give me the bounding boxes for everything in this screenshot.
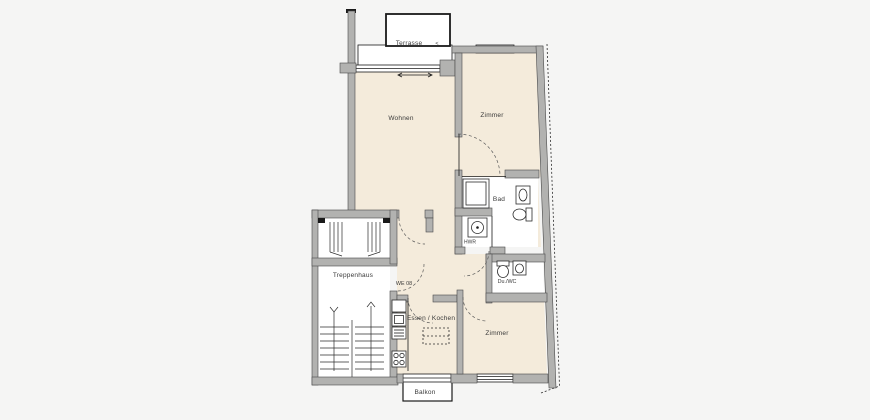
window-zimmer-bottom (477, 374, 513, 382)
label-essen-kochen: Essen / Kochen (407, 315, 456, 322)
kitchen-counter (392, 298, 408, 371)
wall-top-exterior (452, 46, 543, 53)
room-wohnen-floor (354, 71, 455, 212)
label-terrasse-mark: < (435, 41, 438, 47)
wall-left-exterior (348, 11, 355, 212)
wall-zimmer-top-bottom (505, 170, 539, 178)
label-zimmer-top: Zimmer (480, 112, 504, 119)
shower-tray (463, 179, 489, 208)
wall-bad-bottom-2 (490, 247, 505, 254)
wall-stairwell-bottom (312, 377, 398, 385)
label-we-number: WE 08 (396, 281, 412, 287)
label-zimmer-bottom: Zimmer (485, 330, 509, 337)
stove-icon (392, 351, 406, 367)
label-wohnen: Wohnen (388, 115, 413, 122)
wall-bottom-1 (397, 374, 403, 383)
label-bad: Bad (493, 196, 505, 203)
wall-stairwell-left (312, 210, 318, 385)
wall-window-block-left (340, 63, 356, 73)
wall-bad-bottom-1 (455, 247, 465, 254)
label-treppenhaus: Treppenhaus (333, 272, 374, 279)
label-hwr: HWR (464, 240, 476, 246)
washbasin-duwc (513, 261, 526, 275)
wall-zimmer-bottom-left (457, 290, 463, 374)
terrace-slab (358, 45, 452, 66)
label-terrasse: Terrasse (396, 40, 423, 47)
wall-duwc-bottom (486, 293, 547, 302)
door-gap-floor-3 (433, 210, 455, 218)
wall-wohnen-zimmer (455, 53, 462, 137)
wall-hall-stub (426, 218, 433, 232)
floorplan-drawing: Terrasse < Wohnen Zimmer Bad HWR Du./WC … (0, 0, 870, 420)
toilet-duwc (497, 261, 509, 278)
window-balcony-door (403, 374, 451, 382)
toilet-bad (513, 208, 532, 221)
door-gap-floor-2 (399, 210, 425, 218)
floorplan-canvas: Terrasse < Wohnen Zimmer Bad HWR Du./WC … (0, 0, 870, 420)
wall-kitchen-top-2 (433, 295, 457, 302)
wall-bottom-3 (513, 374, 548, 383)
wall-window-block-right (440, 60, 455, 76)
wall-hall-top-2 (425, 210, 433, 218)
window-terrace (356, 65, 440, 72)
wall-shaft-bottom (312, 258, 397, 266)
label-duwc: Du./WC (498, 279, 517, 285)
washbasin-bad (516, 186, 530, 204)
wall-hall-top (312, 210, 399, 218)
label-balkon: Balkon (414, 389, 435, 396)
wall-hwr-top (455, 208, 492, 216)
wall-stairwell-right-upper (390, 210, 397, 264)
room-treppenhaus-floor (318, 266, 390, 377)
washing-machine-icon (468, 218, 487, 237)
wall-bottom-2 (451, 374, 477, 383)
